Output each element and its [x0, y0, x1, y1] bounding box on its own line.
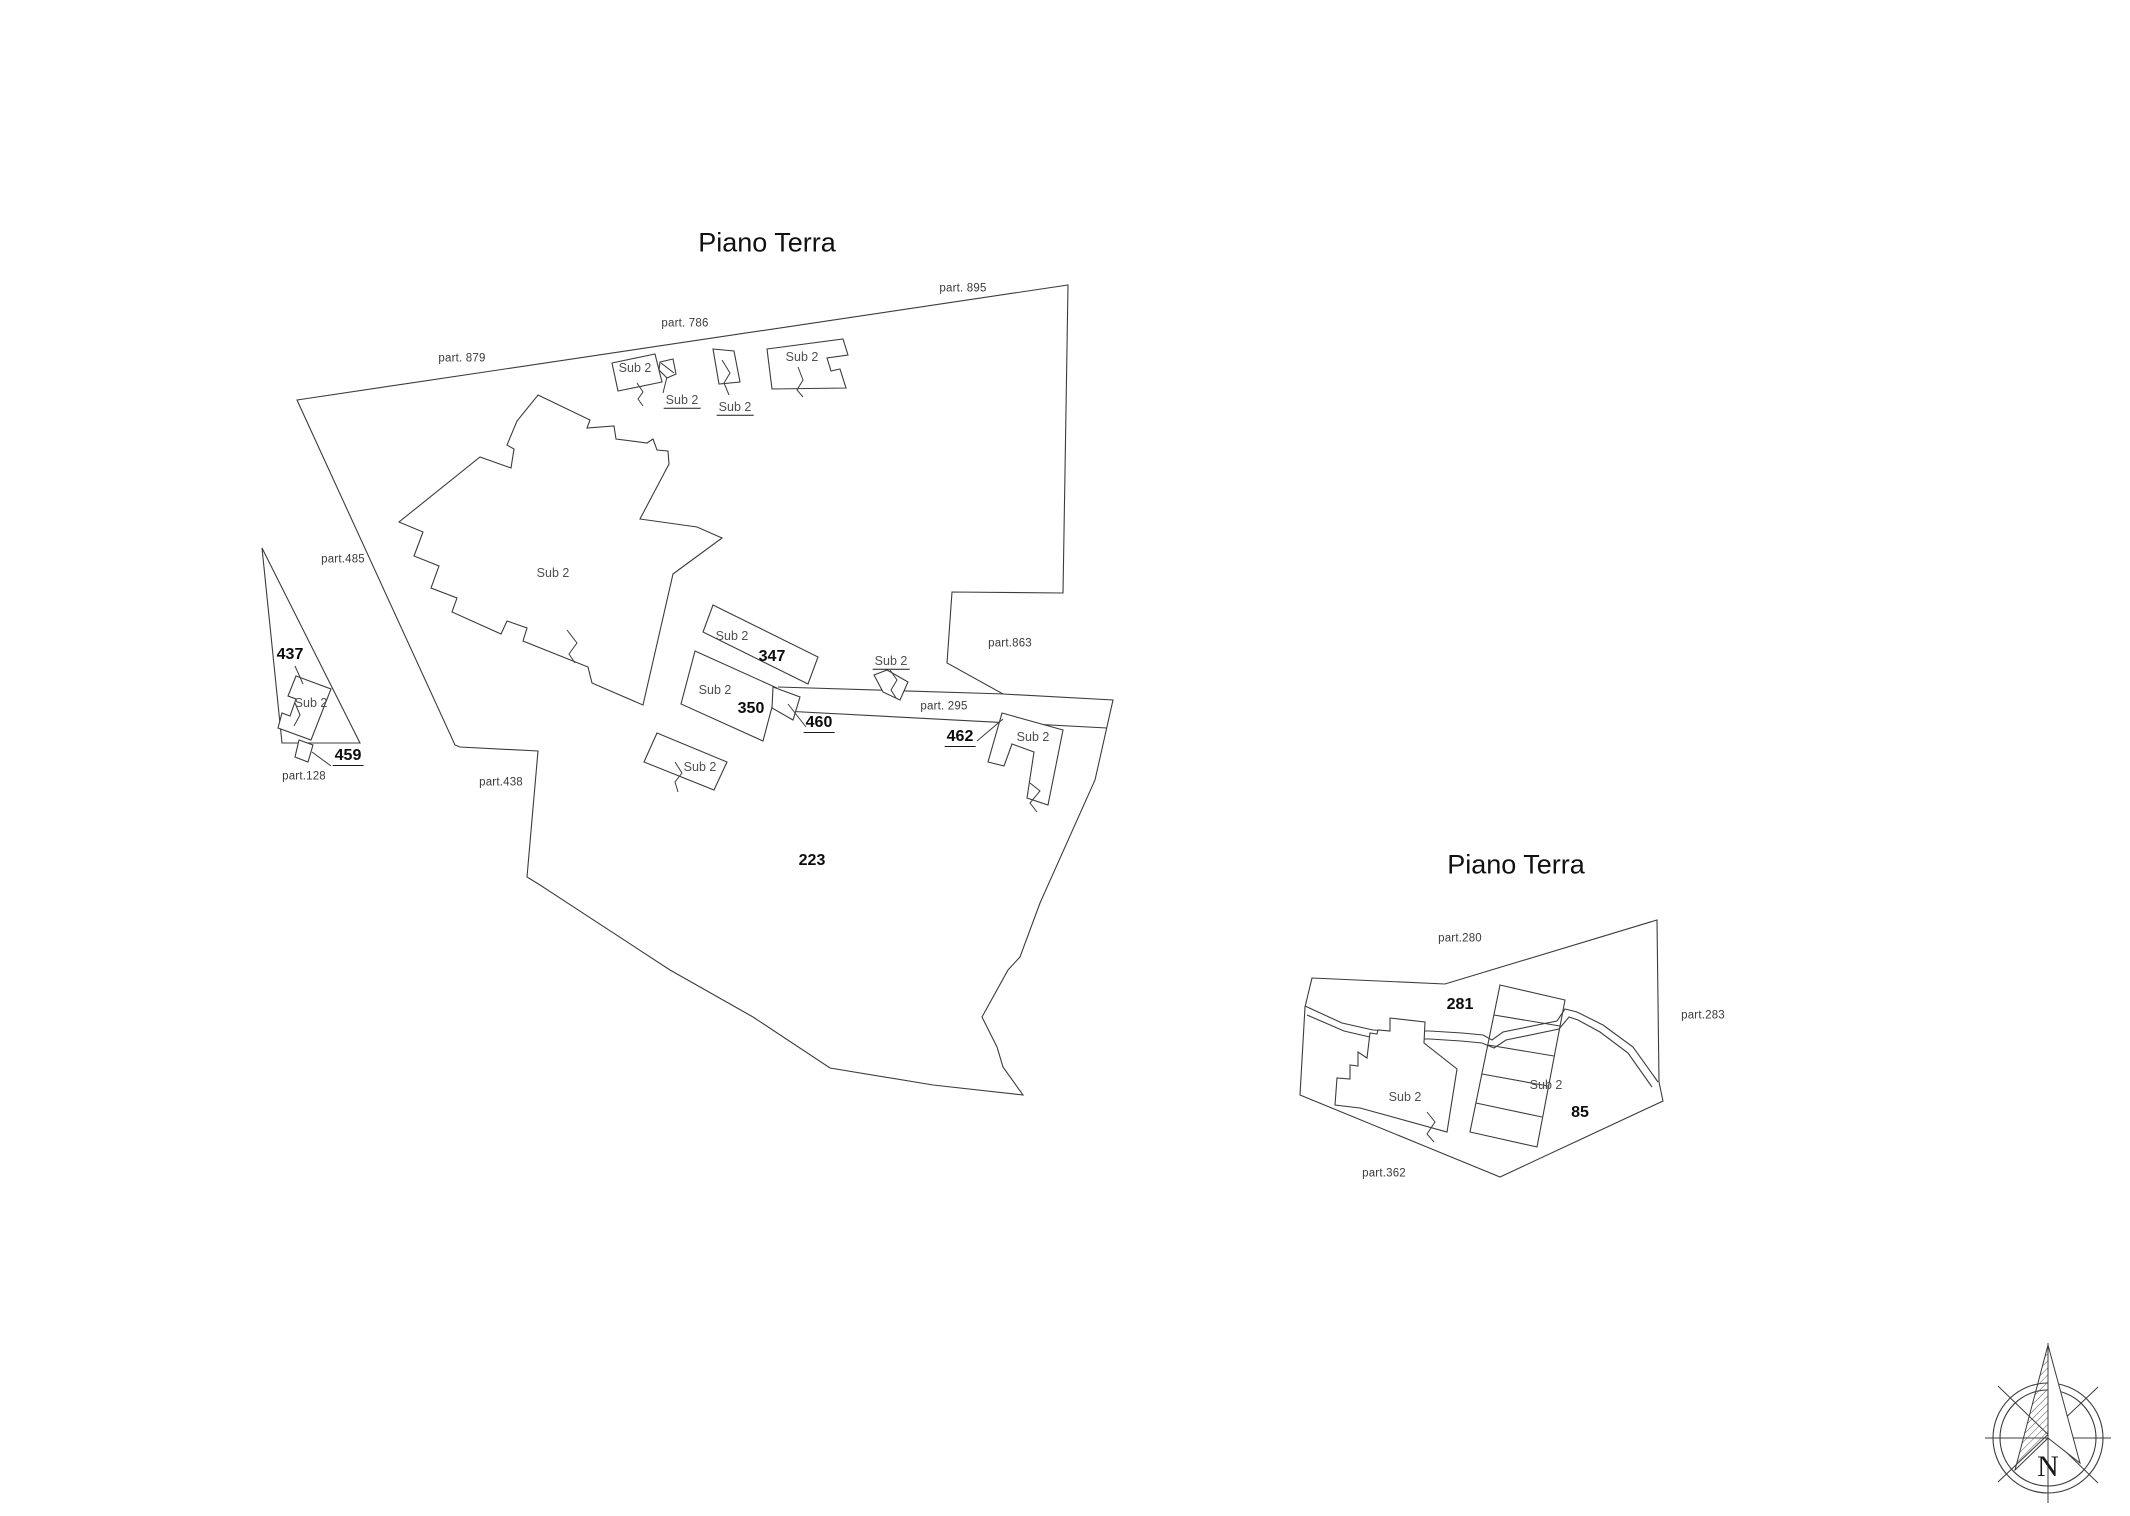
building-462-u [988, 713, 1063, 805]
parcel-label-438: part.438 [479, 777, 523, 789]
parcel-number-223: 223 [799, 853, 826, 869]
sub-label-cluster-l: Sub 2 [786, 351, 819, 364]
sub-label-u-building: Sub 2 [1017, 731, 1050, 744]
sub-label-strip-building: Sub 2 [873, 655, 910, 670]
leader-459 [312, 752, 331, 766]
terrace-division-1 [1494, 1015, 1560, 1026]
sub-label-347: Sub 2 [716, 630, 749, 643]
sub-label-main-building: Sub 2 [537, 567, 570, 580]
left-building-2 [1335, 1018, 1457, 1132]
sub-label-triangle: Sub 2 [295, 697, 328, 710]
sub-label-cluster-rect: Sub 2 [619, 362, 652, 375]
terrace-division-4 [1476, 1103, 1542, 1117]
parcel-number-459: 459 [333, 748, 364, 766]
parcel-number-281: 281 [1447, 997, 1474, 1013]
terrace-division-2 [1488, 1045, 1554, 1056]
building-strip-small [874, 670, 908, 700]
parcel-label-879: part. 879 [438, 353, 485, 365]
main-building [399, 395, 722, 705]
terrace-group-outline [1470, 985, 1565, 1147]
parcel-label-280: part.280 [1438, 933, 1482, 945]
parcel-number-437: 437 [277, 647, 304, 663]
leader-cluster-pentagon [663, 377, 667, 393]
sub-label-cluster-narrow: Sub 2 [717, 401, 754, 416]
parcel-label-295: part. 295 [920, 701, 967, 713]
parcel-label-863: part.863 [988, 638, 1032, 650]
compass-north-letter: N [2037, 1452, 2059, 1482]
sub-label-small-rect: Sub 2 [684, 761, 717, 774]
sub-label-left-building-2: Sub 2 [1389, 1091, 1422, 1104]
parcel-label-485: part.485 [321, 554, 365, 566]
parcel-label-362: part.362 [1362, 1168, 1406, 1180]
drawing-svg [0, 0, 2130, 1516]
plan-canvas: Piano TerraPiano Terrapart. 895part. 786… [0, 0, 2130, 1516]
parcel-number-462: 462 [945, 729, 976, 747]
sub-label-cluster-pentagon: Sub 2 [664, 394, 701, 409]
parcel-number-347: 347 [759, 649, 786, 665]
sub-label-350: Sub 2 [699, 684, 732, 697]
title-right: Piano Terra [1447, 852, 1585, 879]
compass-north-arrow-right [2048, 1345, 2080, 1463]
title-left: Piano Terra [698, 230, 836, 257]
parcel-number-85: 85 [1571, 1105, 1589, 1121]
second-parcel-boundary [1300, 920, 1663, 1177]
cluster-l-building [767, 339, 848, 389]
parcel-number-460: 460 [804, 715, 835, 733]
parcel-number-350: 350 [738, 701, 765, 717]
parcel-label-895: part. 895 [939, 283, 986, 295]
parcel-label-786: part. 786 [661, 318, 708, 330]
parcel-label-283: part.283 [1681, 1010, 1725, 1022]
parcel-label-128: part.128 [282, 771, 326, 783]
sub-label-terraces: Sub 2 [1530, 1079, 1563, 1092]
building-460-square [772, 687, 800, 720]
